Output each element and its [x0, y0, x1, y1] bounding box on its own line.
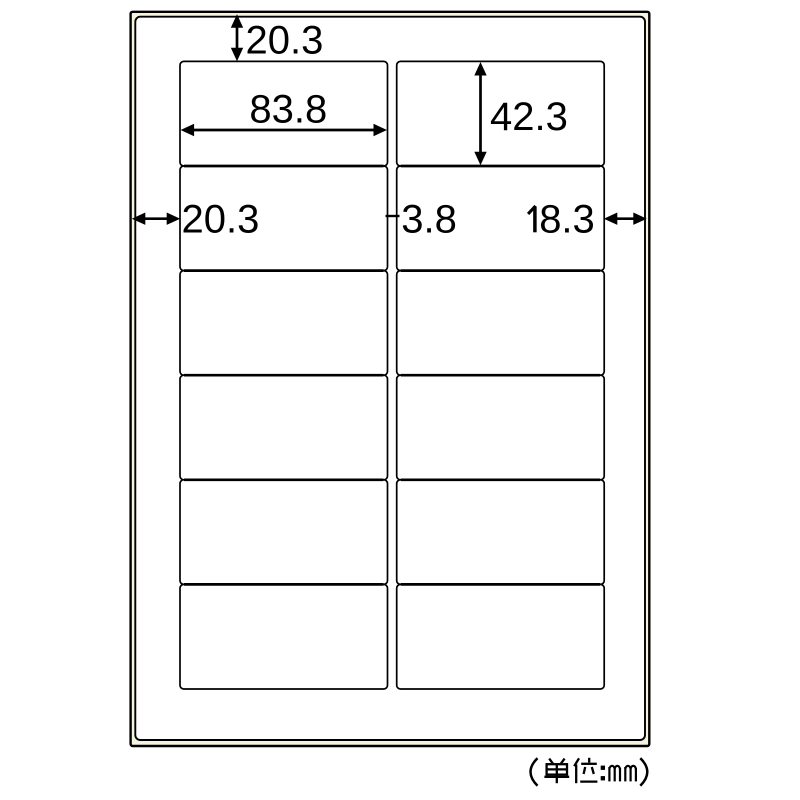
svg-text:3.8: 3.8: [401, 198, 457, 242]
svg-text:20.3: 20.3: [246, 19, 324, 63]
svg-text:20.3: 20.3: [182, 198, 260, 242]
svg-text:8.3: 8.3: [539, 198, 595, 242]
svg-text:42.3: 42.3: [490, 95, 568, 139]
svg-text:83.8: 83.8: [249, 88, 327, 132]
